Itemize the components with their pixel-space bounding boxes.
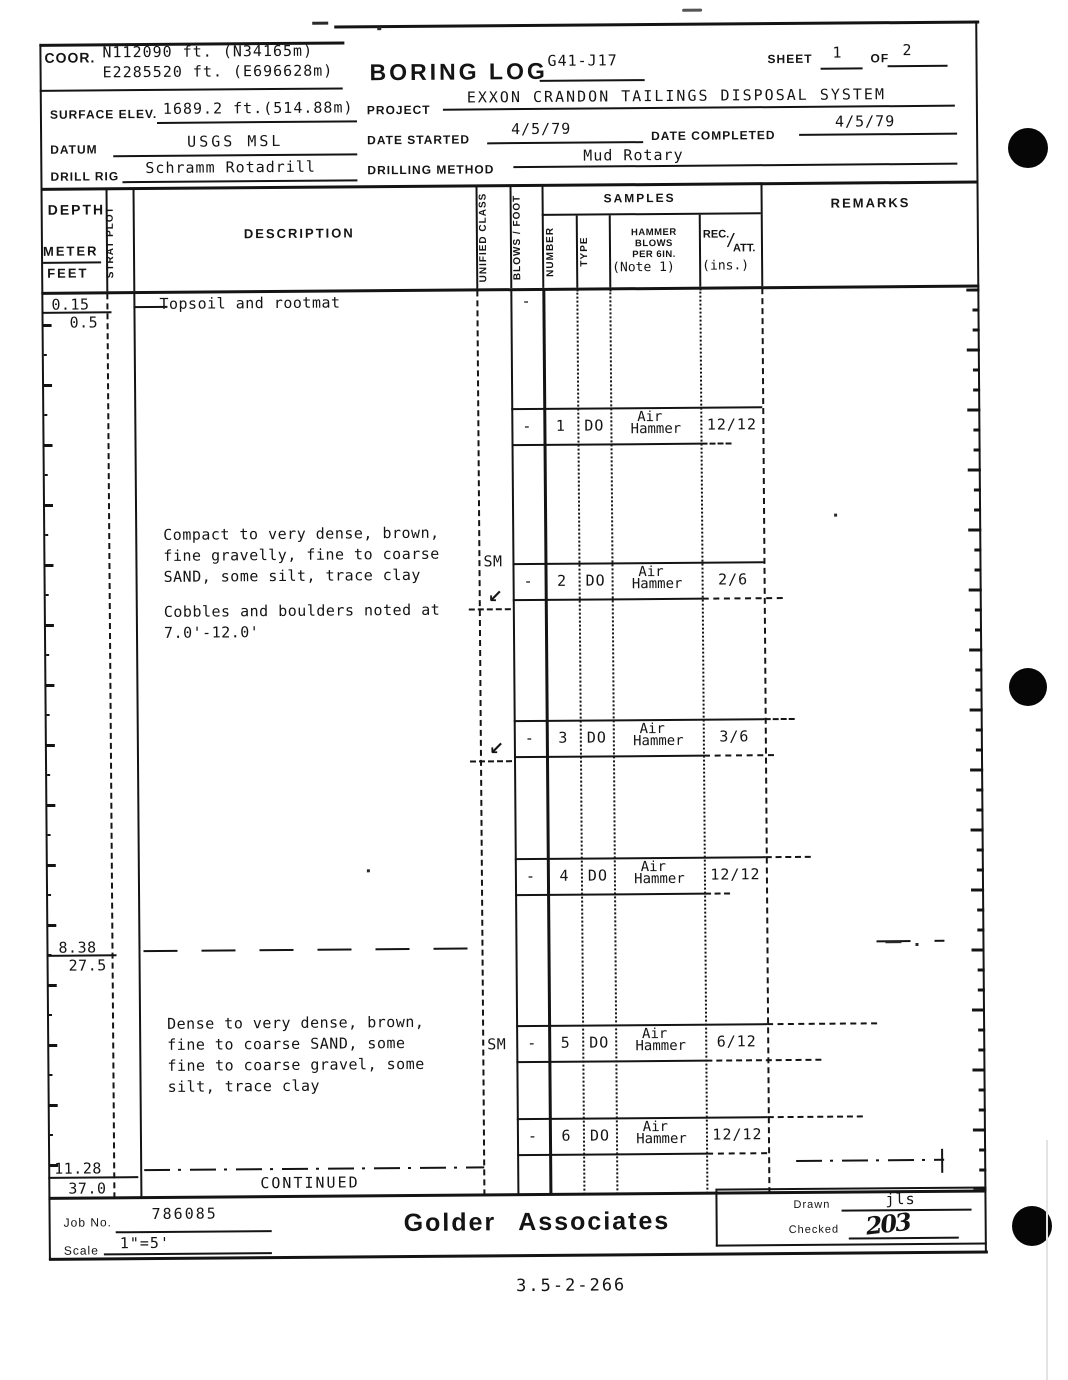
drill-rig-value: Schramm Rotadrill <box>145 158 316 177</box>
surface-elev-label: SURFACE ELEV. <box>50 107 157 122</box>
stratum-note: 7.0'-12.0' <box>164 623 259 642</box>
depth-feet-value: 37.0 <box>68 1179 106 1197</box>
underline <box>122 179 357 183</box>
underline <box>113 153 357 157</box>
rec-att-value: 12/12 <box>705 865 766 883</box>
hammer-blows-value: AirHammer <box>616 1028 705 1053</box>
border-line <box>334 20 979 28</box>
stratum-description: fine to coarse SAND, some <box>167 1034 405 1054</box>
sheet-total-value: 2 <box>902 41 912 59</box>
row-line <box>765 718 795 720</box>
hammer-blows-value: AirHammer <box>614 723 703 748</box>
drilling-method-value: Mud Rotary <box>583 146 683 165</box>
att-label: ATT. <box>733 242 755 254</box>
blows-per-foot-value: - <box>515 867 547 885</box>
stratum-description: Compact to very dense, brown, <box>163 524 440 544</box>
row-line <box>702 442 732 444</box>
row-line <box>704 754 774 757</box>
row-line <box>768 1115 863 1118</box>
underline <box>888 65 948 67</box>
stratum-description: silt, trace clay <box>167 1077 320 1096</box>
depth-feet-value: 0.5 <box>69 313 98 331</box>
row-line <box>514 755 704 758</box>
row-line <box>517 1153 707 1156</box>
project-label: PROJECT <box>367 103 431 117</box>
underline <box>821 67 863 69</box>
boring-id-value: G41-J17 <box>547 51 617 70</box>
meter-feet-divider <box>43 261 101 263</box>
type-column-header: TYPE <box>579 217 606 285</box>
column-divider <box>609 215 612 287</box>
punch-hole <box>1008 128 1048 168</box>
hammer-blows-header-line2: BLOWS <box>612 238 696 250</box>
datum-value: USGS MSL <box>187 132 283 151</box>
rec-att-value: 12/12 <box>701 415 762 433</box>
row-line <box>767 1022 877 1025</box>
number-column-header: NUMBER <box>545 218 574 286</box>
drawn-label: Drawn <box>793 1199 830 1211</box>
sample-row: - 5 DO AirHammer 6/12 <box>516 1023 767 1061</box>
underline <box>104 1252 272 1255</box>
speck <box>367 869 370 872</box>
drawn-value: jls <box>885 1190 915 1208</box>
boring-log-form: COOR. N112090 ft. (N34165m) E2285520 ft.… <box>0 0 1068 1380</box>
log-table-body: 0.15 0.5 Topsoil and rootmat - Compact t… <box>41 286 986 1198</box>
row-line <box>515 893 705 896</box>
scale-label: Scale <box>64 1243 99 1257</box>
description-column-header: DESCRIPTION <box>244 225 355 241</box>
sample-row: - 6 DO AirHammer 12/12 <box>517 1116 768 1154</box>
strat-plot-column-header: STRAT PLOT <box>105 195 132 289</box>
hammer-blows-value: AirHammer <box>612 566 701 591</box>
column-divider <box>133 293 142 1198</box>
sample-row: - 2 DO AirHammer 2/6 <box>512 561 763 599</box>
speck <box>682 9 702 12</box>
underline <box>849 1237 959 1240</box>
row-line <box>705 892 730 894</box>
sample-number: 5 <box>549 1034 582 1052</box>
document-code: 3.5-2-266 <box>516 1275 626 1296</box>
column-divider <box>133 188 136 291</box>
row-line <box>707 1152 767 1154</box>
speck <box>915 943 918 946</box>
rec-att-value: 3/6 <box>704 727 765 745</box>
sheet-label: SHEET <box>767 52 812 66</box>
boundary-line <box>48 1176 138 1179</box>
scale-value: 1"=5' <box>120 1234 170 1252</box>
hammer-blows-header-line3: PER 6IN. <box>612 249 696 261</box>
date-completed-value: 4/5/79 <box>835 112 895 130</box>
boundary-line <box>470 760 512 762</box>
speck <box>885 941 901 943</box>
column-divider <box>541 185 544 288</box>
rec-att-value: 2/6 <box>703 570 764 588</box>
scanned-boring-log-page: COOR. N112090 ft. (N34165m) E2285520 ft.… <box>0 0 1068 1380</box>
sample-number: 2 <box>546 572 579 590</box>
column-divider <box>760 183 763 286</box>
boundary-line <box>469 608 511 610</box>
sheet-number-value: 1 <box>832 44 842 62</box>
stratum-description: fine to coarse gravel, some <box>167 1055 424 1075</box>
hammer-blows-header-line1: HAMMER <box>612 227 696 239</box>
stratum-description: SAND, some silt, trace clay <box>163 566 420 586</box>
speck <box>377 27 381 30</box>
sample-number: 1 <box>544 417 577 435</box>
rec-att-units: (ins.) <box>702 258 749 273</box>
sample-depth-arrow-icon: ↙ <box>488 586 503 607</box>
hammer-blows-value: AirHammer <box>617 1121 706 1146</box>
sample-row: - 1 DO AirHammer 12/12 <box>511 406 762 444</box>
remarks-column-header: REMARKS <box>831 195 911 211</box>
company-name: Golder Associates <box>404 1207 671 1238</box>
sample-row: - 4 DO AirHammer 12/12 <box>515 856 766 894</box>
meter-label: METER <box>43 243 99 258</box>
hammer-blows-note: (Note 1) <box>612 260 675 275</box>
boundary-line <box>941 1149 943 1173</box>
stratum-description: Topsoil and rootmat <box>159 294 340 313</box>
blows-per-foot-value: - <box>516 1034 548 1052</box>
depth-meter-value: 11.28 <box>54 1159 102 1177</box>
sample-number: 3 <box>547 729 580 747</box>
column-divider <box>476 290 485 1195</box>
blows-per-foot-value: - <box>514 729 546 747</box>
drilling-method-label: DRILLING METHOD <box>367 162 494 177</box>
datum-label: DATUM <box>50 142 98 156</box>
blows-foot-column-header: BLOWS / FOOT <box>512 188 541 286</box>
date-started-value: 4/5/79 <box>511 120 571 138</box>
punch-hole <box>1009 668 1047 706</box>
job-no-value: 786085 <box>151 1204 217 1223</box>
samples-underline <box>542 212 761 216</box>
border-line <box>715 1191 717 1247</box>
unified-class-value: SM <box>487 1035 506 1053</box>
speck <box>312 22 328 25</box>
stratum-description: Dense to very dense, brown, <box>167 1013 424 1033</box>
underline <box>540 79 645 82</box>
rec-att-value: 6/12 <box>706 1032 767 1050</box>
blows-per-foot-value: - <box>511 417 543 435</box>
column-divider <box>699 215 702 287</box>
continued-label: CONTINUED <box>260 1173 359 1192</box>
feet-label: FEET <box>47 265 88 280</box>
row-line <box>703 597 783 600</box>
project-value: EXXON CRANDON TAILINGS DISPOSAL SYSTEM <box>467 85 886 106</box>
hammer-blows-value: AirHammer <box>611 411 700 436</box>
drill-rig-label: DRILL RIG <box>50 169 119 184</box>
underline <box>513 163 957 168</box>
unified-class-column-header: UNIFIED CLASS <box>478 188 509 286</box>
stratum-boundary-line <box>144 1166 484 1171</box>
underline <box>799 133 957 136</box>
checked-label: Checked <box>789 1224 840 1236</box>
blows-per-foot-value: - <box>513 572 545 590</box>
depth-feet-value: 27.5 <box>69 956 107 974</box>
coor-north-value: N112090 ft. (N34165m) <box>102 42 313 62</box>
row-line <box>516 1060 706 1063</box>
border-line <box>716 1242 987 1246</box>
of-label: OF <box>870 51 889 65</box>
unified-class-value: SM <box>483 552 502 570</box>
coor-label: COOR. <box>44 49 95 65</box>
underline <box>157 120 357 124</box>
stratum-boundary-line <box>796 1159 944 1162</box>
row-line <box>512 443 702 446</box>
sample-depth-arrow-icon: ↙ <box>489 738 504 759</box>
hammer-blows-value: AirHammer <box>615 861 704 886</box>
row-line <box>766 856 811 858</box>
sample-row: - 3 DO AirHammer 3/6 <box>514 718 765 756</box>
scan-edge-line <box>1046 1140 1048 1380</box>
blows-per-foot-value: - <box>510 292 542 310</box>
rec-att-value: 12/12 <box>707 1125 768 1143</box>
speck <box>834 514 837 517</box>
underline <box>40 87 343 91</box>
blows-per-foot-value: - <box>517 1127 549 1145</box>
stratum-description: fine gravelly, fine to coarse <box>163 545 440 565</box>
underline <box>116 1230 272 1233</box>
surface-elev-value: 1689.2 ft.(514.88m) <box>163 98 354 117</box>
job-no-label: Job No. <box>64 1215 112 1229</box>
page-title: BORING LOG <box>369 58 547 86</box>
row-line <box>513 598 703 601</box>
checked-signature: 203 <box>864 1207 911 1241</box>
date-completed-label: DATE COMPLETED <box>651 128 776 143</box>
depth-column-header: DEPTH <box>48 201 106 217</box>
row-line <box>706 1059 821 1062</box>
coor-east-value: E2285520 ft. (E696628m) <box>103 62 334 82</box>
column-divider <box>106 293 115 1198</box>
underline <box>487 141 643 144</box>
stratum-note: Cobbles and boulders noted at <box>164 601 441 621</box>
stratum-boundary-line <box>143 947 481 952</box>
date-started-label: DATE STARTED <box>367 132 470 147</box>
sample-number: 6 <box>550 1127 583 1145</box>
samples-column-header: SAMPLES <box>604 191 676 206</box>
sample-number: 4 <box>548 867 581 885</box>
